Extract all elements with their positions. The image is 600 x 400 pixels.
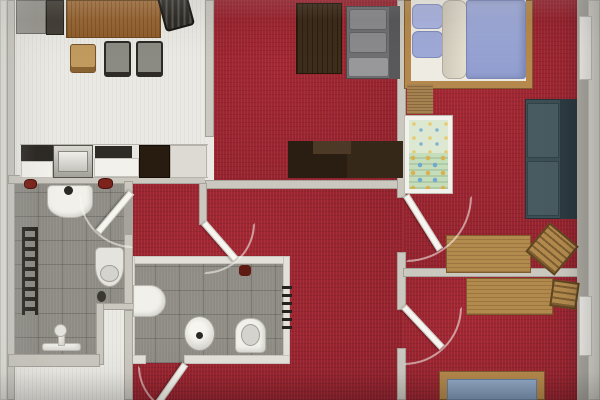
bed1-mattress: [466, 0, 526, 79]
bathleft-basin-faucet: [64, 186, 73, 195]
sofa-armrest: [348, 57, 389, 77]
wall-living-south: [205, 180, 403, 189]
bathmid-basin-drain: [196, 332, 203, 339]
dining-chair-wood: [70, 44, 96, 73]
crib-blanket: [409, 153, 448, 189]
wall-kitchen-living: [205, 0, 214, 137]
wall-shower-south: [8, 354, 100, 367]
kitchen-cooktop: [95, 146, 132, 158]
sideboard-gray: [16, 0, 46, 34]
wall-right-vert-b: [397, 252, 406, 310]
desk-chair-bedroom2: [549, 279, 579, 309]
bathleft-toilet-brush: [97, 291, 106, 302]
tv-cabinet-right: [347, 141, 403, 178]
outer-wall-left-outer: [0, 0, 7, 400]
bathleft-toilet-bowl: [100, 265, 119, 282]
floor-plan-canvas: [0, 0, 600, 400]
crib-pillow: [409, 120, 448, 153]
hallway-radiator: [282, 286, 292, 334]
tv-cabinet-step: [313, 141, 351, 154]
wall-bathmid-bottom-r: [184, 355, 290, 364]
sofa-backrest: [389, 6, 400, 79]
wall-notch-right: [124, 310, 133, 400]
teal-sofa-cushion-1: [527, 103, 559, 158]
desk-bedroom1: [446, 235, 531, 273]
dining-chair-gray-2: [136, 41, 163, 77]
coffee-table: [296, 3, 342, 74]
bathmid-bidet: [133, 285, 166, 317]
kitchen-cabinet-front-a: [21, 161, 53, 178]
door-threshold-wood: [407, 84, 433, 114]
dining-chair-gray-1: [104, 41, 131, 77]
bathmid-wall-object: [239, 265, 251, 276]
sofa-cushion-2: [349, 32, 387, 53]
sofa-cushion-1: [349, 9, 387, 30]
window-right-2: [579, 296, 592, 356]
bathleft-towel-radiator: [22, 227, 38, 315]
wall-vestibule: [199, 183, 207, 225]
wall-object-red-2: [98, 178, 113, 189]
bed1-pillow-2: [412, 31, 443, 58]
bathmid-toilet-bowl: [241, 324, 260, 346]
entry-floor: [0, 366, 126, 400]
wall-object-red-1: [24, 179, 37, 189]
teal-sofa-cushion-2: [527, 161, 559, 216]
sideboard-dark: [46, 0, 64, 35]
outer-wall-left-inner: [7, 0, 15, 400]
kitchen-tall-unit: [139, 145, 170, 178]
desk-bedroom2: [466, 278, 553, 315]
shower-head: [54, 324, 67, 337]
kitchen-cabinet-front-b: [94, 158, 139, 177]
window-right-1: [579, 16, 592, 80]
kitchen-counter-dark: [21, 145, 53, 161]
bed2-mattress: [447, 379, 537, 400]
bed1-pillow-1: [412, 4, 443, 29]
kitchen-sink-basin: [58, 151, 88, 172]
dining-table: [66, 0, 161, 38]
teal-sofa-backrest: [560, 99, 577, 219]
kitchen-counter-end: [170, 145, 207, 178]
bed1-duvet-roll: [442, 0, 467, 79]
